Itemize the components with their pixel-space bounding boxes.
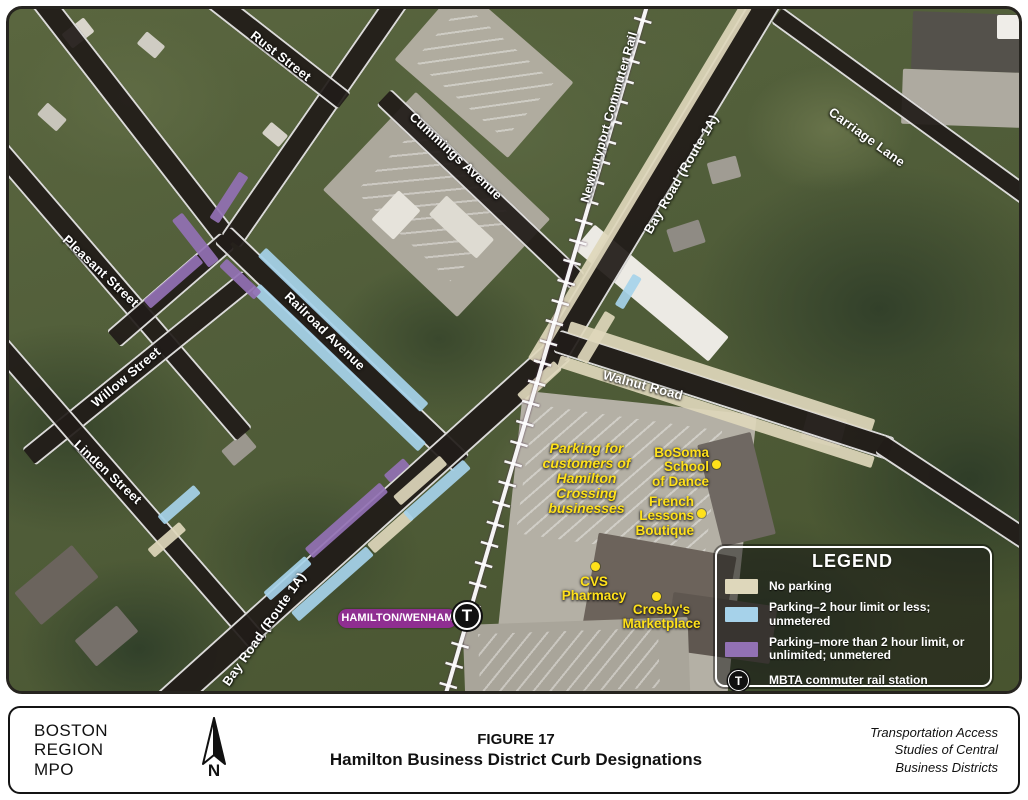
figure-title: Hamilton Business District Curb Designat… bbox=[244, 750, 788, 770]
svg-text:N: N bbox=[208, 761, 220, 780]
no-parking-swatch bbox=[725, 579, 758, 594]
legend-title: LEGEND bbox=[725, 551, 980, 572]
parking-over-2hr-swatch bbox=[725, 642, 758, 657]
poi-bosoma-dot bbox=[712, 460, 721, 469]
station-name-badge: HAMILTON/WENHAM bbox=[338, 609, 457, 628]
building-roof bbox=[997, 15, 1022, 39]
north-arrow-icon: N bbox=[196, 716, 232, 780]
legend-item-no-parking: No parking bbox=[725, 579, 980, 594]
mbta-station-icon: T bbox=[453, 602, 481, 630]
mbta-legend-icon: T bbox=[728, 670, 749, 691]
legend-item-long-term-parking: Parking–more than 2 hour limit, or unlim… bbox=[725, 636, 980, 664]
figure-caption: FIGURE 17 Hamilton Business District Cur… bbox=[244, 731, 788, 770]
legend-item-station: T MBTA commuter rail station bbox=[725, 670, 980, 691]
north-arrow: N bbox=[184, 716, 244, 785]
poi-cvs-label: CVS Pharmacy bbox=[554, 575, 634, 604]
legend-item-2hr-parking: Parking–2 hour limit or less; unmetered bbox=[725, 601, 980, 629]
figure-number: FIGURE 17 bbox=[244, 731, 788, 748]
study-credit: Transportation Access Studies of Central… bbox=[788, 724, 1018, 775]
map-panel: Rust Street Cummings Avenue Pleasant Str… bbox=[6, 6, 1022, 694]
poi-crosby-dot bbox=[652, 592, 661, 601]
parking-rows bbox=[478, 628, 660, 694]
legend: LEGEND No parking Parking–2 hour limit o… bbox=[715, 546, 992, 687]
poi-crosby-label: Crosby's Marketplace bbox=[614, 603, 709, 632]
title-block: BOSTON REGION MPO N FIGURE 17 Hamilton B… bbox=[8, 706, 1020, 794]
poi-cvs-dot bbox=[591, 562, 600, 571]
poi-french-lessons-dot bbox=[697, 509, 706, 518]
poi-french-lessons-label: French Lessons Boutique bbox=[594, 495, 694, 538]
poi-bosoma-label: BoSoma School of Dance bbox=[609, 446, 709, 489]
agency-name: BOSTON REGION MPO bbox=[10, 721, 184, 778]
figure-page: Rust Street Cummings Avenue Pleasant Str… bbox=[0, 0, 1028, 800]
parking-2hr-swatch bbox=[725, 607, 758, 622]
